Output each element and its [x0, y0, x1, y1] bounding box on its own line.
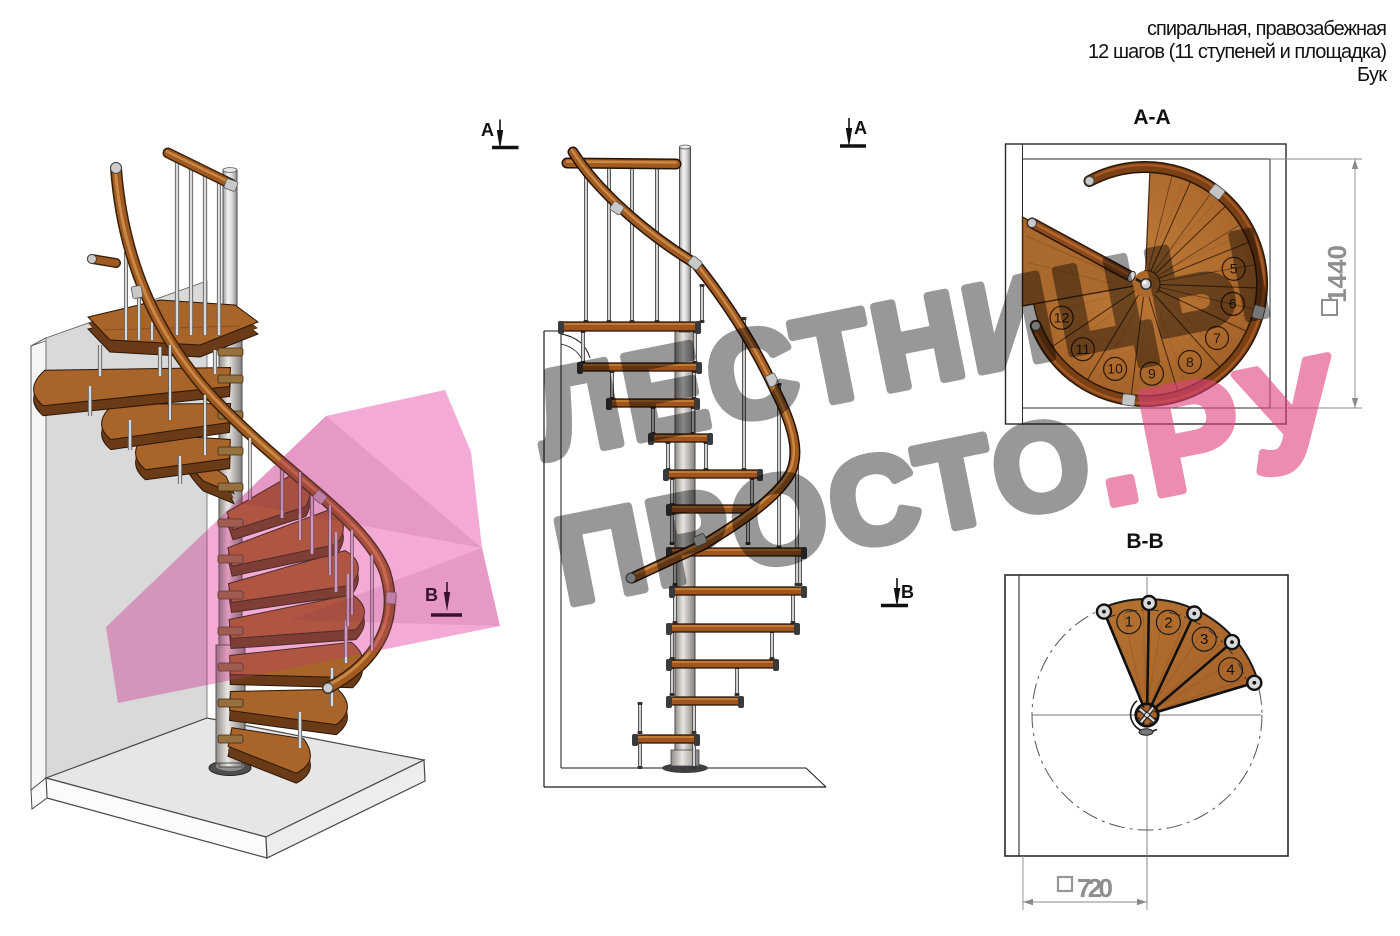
svg-text:A: A [481, 120, 494, 140]
svg-text:B-B: B-B [1126, 530, 1163, 553]
svg-text:4: 4 [1226, 662, 1234, 679]
svg-text:A-A: A-A [1133, 106, 1170, 129]
svg-text:1440: 1440 [1322, 245, 1352, 303]
svg-text:B: B [901, 582, 914, 602]
svg-text:720: 720 [1077, 873, 1113, 903]
svg-text:12 шагов (11 ступеней и площад: 12 шагов (11 ступеней и площадка) [1088, 41, 1387, 63]
svg-text:спиральная, правозабежная: спиральная, правозабежная [1147, 18, 1387, 40]
svg-text:3: 3 [1200, 631, 1208, 648]
svg-text:1: 1 [1125, 614, 1133, 631]
svg-text:Бук: Бук [1357, 64, 1387, 86]
svg-text:2: 2 [1164, 614, 1172, 631]
svg-text:A: A [854, 118, 867, 138]
svg-text:B: B [425, 585, 438, 605]
